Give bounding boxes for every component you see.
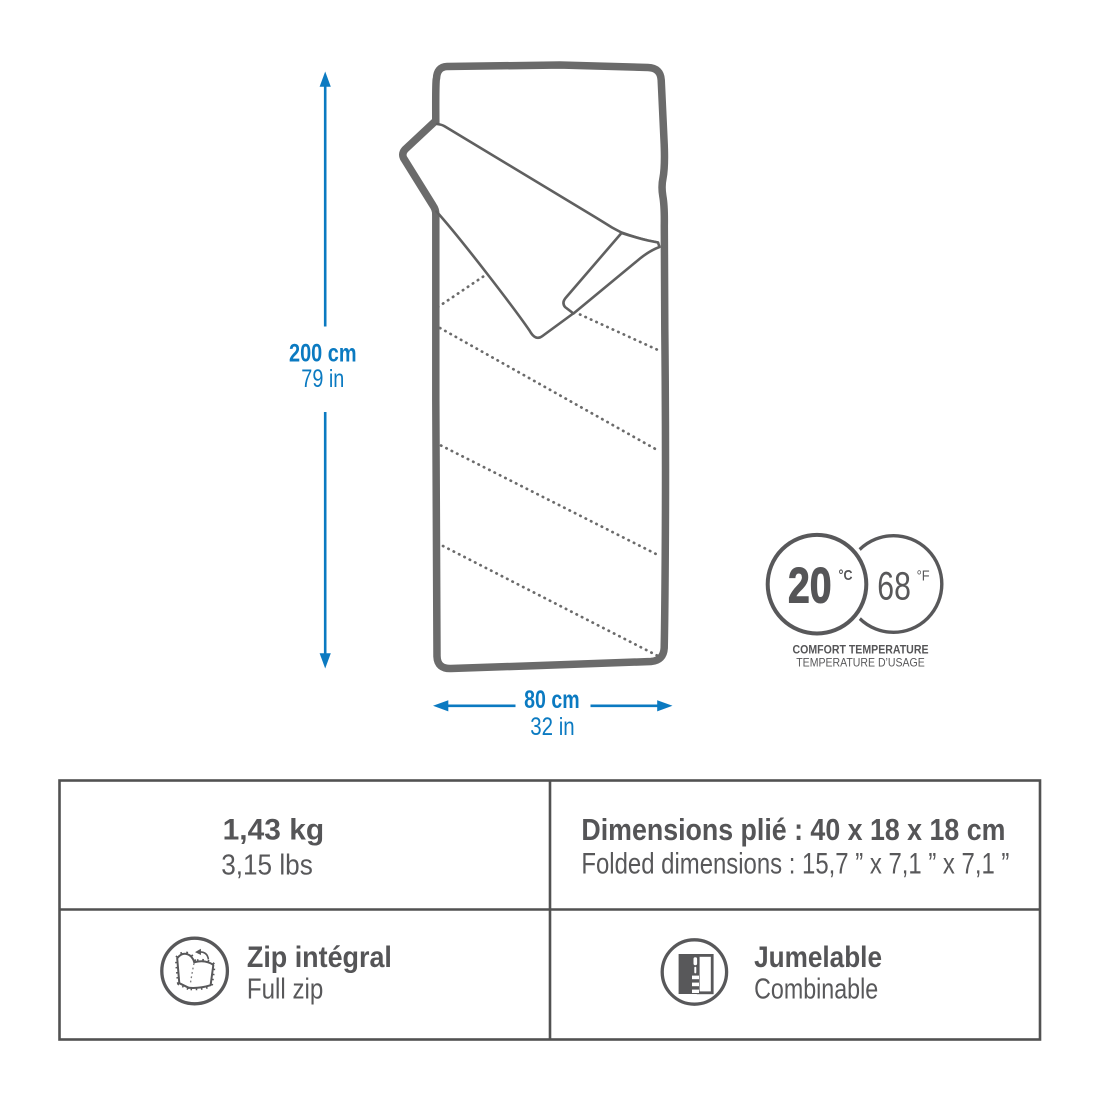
svg-text:Jumelable: Jumelable — [754, 941, 882, 974]
svg-text:80 cm: 80 cm — [524, 686, 580, 714]
svg-text:°F: °F — [917, 568, 930, 585]
svg-text:79 in: 79 in — [301, 365, 344, 393]
svg-text:Zip intégral: Zip intégral — [247, 941, 392, 974]
svg-text:3,15 lbs: 3,15 lbs — [221, 849, 313, 881]
svg-text:°C: °C — [839, 567, 853, 584]
svg-text:1,43 kg: 1,43 kg — [223, 814, 325, 847]
svg-text:Full zip: Full zip — [247, 973, 323, 1005]
svg-text:Folded dimensions : 15,7 ” x 7: Folded dimensions : 15,7 ” x 7,1 ” x 7,1… — [581, 848, 1009, 881]
svg-text:200 cm: 200 cm — [289, 340, 357, 368]
svg-text:32 in: 32 in — [530, 713, 574, 741]
svg-text:Combinable: Combinable — [754, 973, 878, 1005]
svg-text:TEMPERATURE D’USAGE: TEMPERATURE D’USAGE — [796, 656, 925, 670]
svg-text:Dimensions plié : 40 x 18 x 18: Dimensions plié : 40 x 18 x 18 cm — [581, 812, 1005, 847]
svg-text:68: 68 — [877, 565, 911, 609]
svg-text:20: 20 — [788, 557, 832, 613]
svg-text:COMFORT TEMPERATURE: COMFORT TEMPERATURE — [793, 643, 929, 657]
